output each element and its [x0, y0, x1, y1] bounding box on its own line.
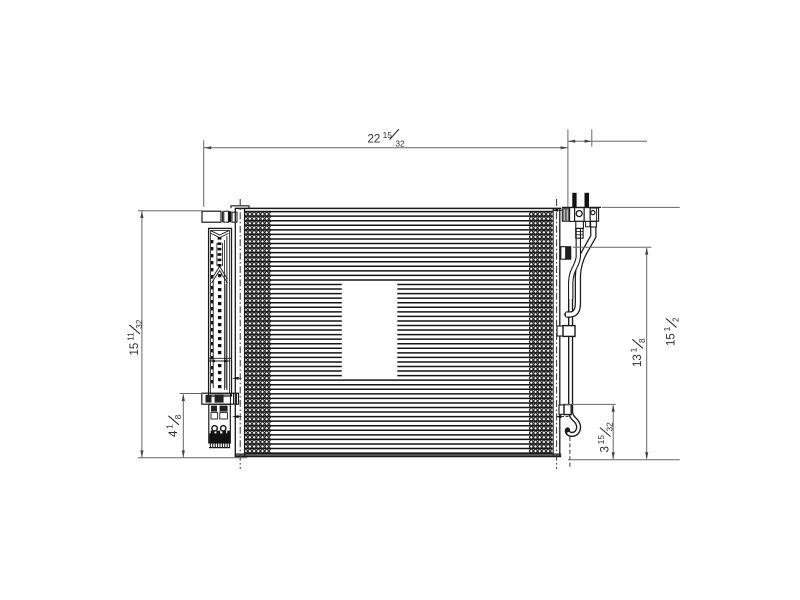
svg-text:32: 32	[134, 319, 144, 329]
svg-text:15: 15	[129, 343, 141, 356]
svg-text:1: 1	[629, 347, 639, 352]
svg-text:8: 8	[637, 338, 647, 343]
svg-text:11: 11	[126, 332, 136, 341]
svg-text:1: 1	[165, 424, 175, 429]
svg-text:13: 13	[632, 354, 644, 367]
svg-text:2: 2	[671, 317, 681, 322]
svg-text:8: 8	[173, 414, 183, 419]
svg-text:1: 1	[662, 326, 672, 331]
svg-text:32: 32	[395, 138, 405, 148]
svg-text:15: 15	[666, 333, 678, 346]
svg-text:4: 4	[168, 430, 180, 437]
svg-text:32: 32	[605, 422, 615, 432]
svg-text:15: 15	[596, 435, 606, 445]
svg-text:3: 3	[600, 446, 612, 452]
svg-text:22: 22	[368, 133, 381, 145]
